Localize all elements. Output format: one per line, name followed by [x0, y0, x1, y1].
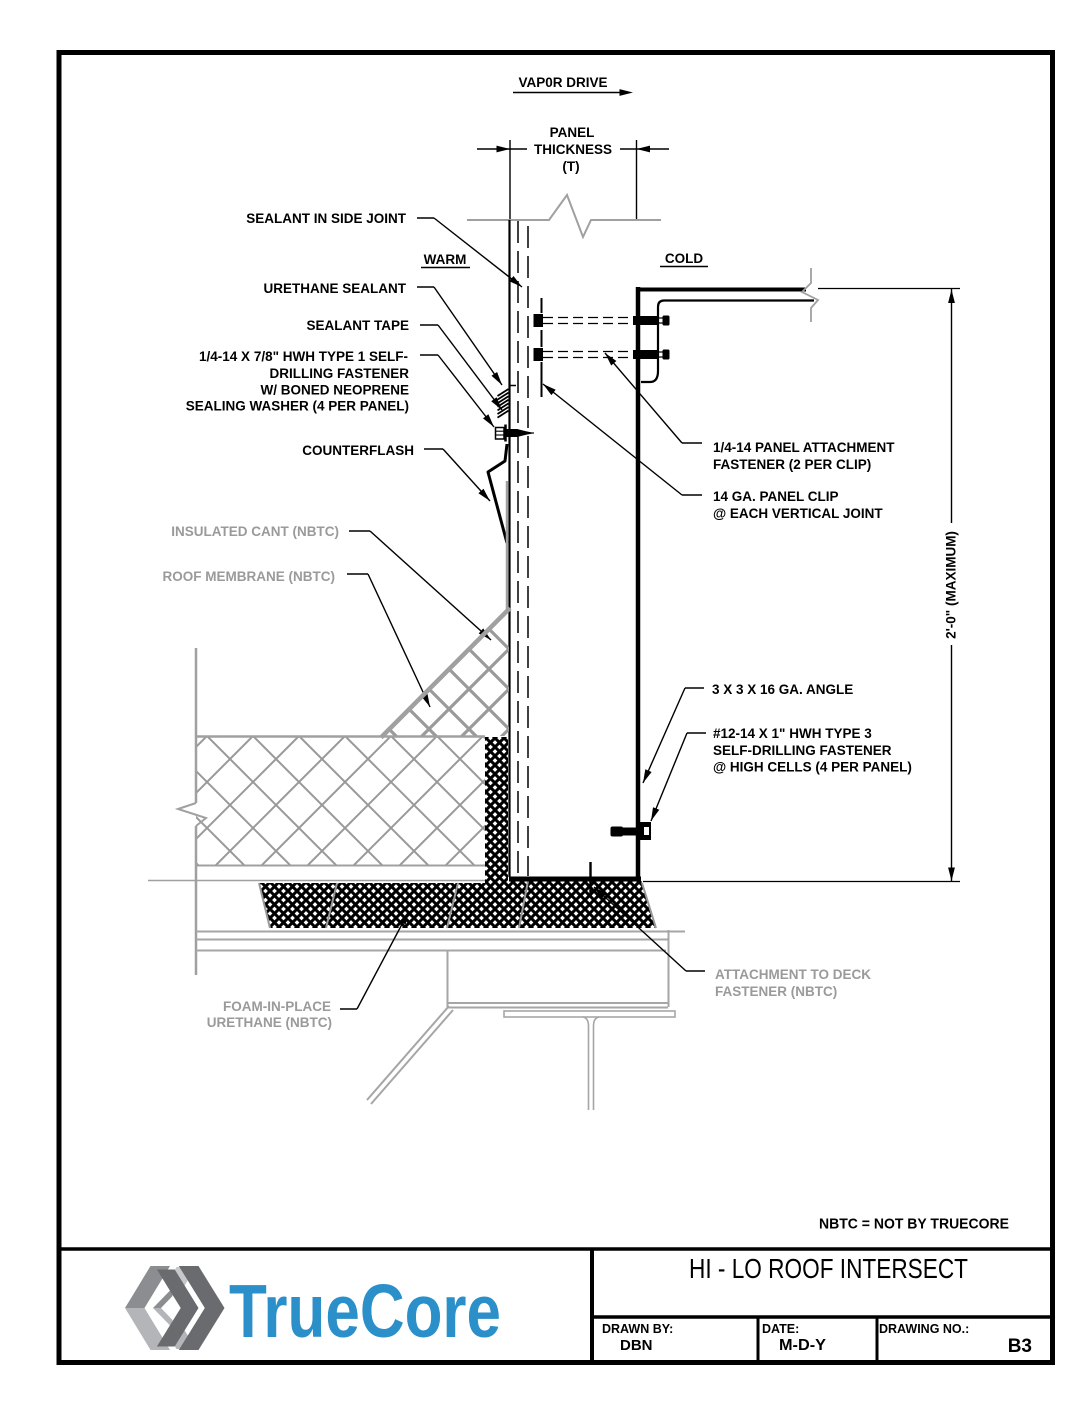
svg-text:DRAWING NO.:: DRAWING NO.:: [879, 1322, 969, 1336]
svg-text:SEALANT TAPE: SEALANT TAPE: [306, 318, 409, 333]
svg-text:1/4-14 X 7/8" HWH TYPE 1 SELF-: 1/4-14 X 7/8" HWH TYPE 1 SELF-: [199, 349, 408, 364]
svg-text:3 X 3 X 16 GA. ANGLE: 3 X 3 X 16 GA. ANGLE: [712, 682, 853, 697]
svg-text:DRILLING FASTENER: DRILLING FASTENER: [269, 366, 409, 381]
svg-text:WARM: WARM: [424, 252, 467, 267]
svg-text:ATTACHMENT TO DECK: ATTACHMENT TO DECK: [715, 967, 871, 982]
svg-text:1/4-14 PANEL ATTACHMENT: 1/4-14 PANEL ATTACHMENT: [713, 440, 895, 455]
svg-text:URETHANE (NBTC): URETHANE (NBTC): [207, 1015, 332, 1030]
svg-text:VAP0R DRIVE: VAP0R DRIVE: [518, 75, 607, 90]
svg-text:DATE:: DATE:: [762, 1322, 799, 1336]
svg-text:ROOF MEMBRANE (NBTC): ROOF MEMBRANE (NBTC): [163, 569, 335, 584]
svg-text:DRAWN BY:: DRAWN BY:: [602, 1322, 673, 1336]
svg-text:DBN: DBN: [620, 1337, 653, 1354]
svg-text:14 GA. PANEL CLIP: 14 GA. PANEL CLIP: [713, 489, 839, 504]
svg-text:SEALING WASHER (4 PER PANEL): SEALING WASHER (4 PER PANEL): [186, 399, 409, 414]
svg-text:FASTENER (2 PER CLIP): FASTENER (2 PER CLIP): [713, 457, 871, 472]
svg-text:B3: B3: [1008, 1336, 1032, 1357]
svg-text:#12-14 X 1" HWH TYPE 3: #12-14 X 1" HWH TYPE 3: [713, 726, 872, 741]
svg-text:(T): (T): [562, 159, 579, 174]
svg-text:@ HIGH CELLS (4 PER PANEL): @ HIGH CELLS (4 PER PANEL): [713, 760, 912, 775]
svg-text:URETHANE SEALANT: URETHANE SEALANT: [263, 281, 406, 296]
svg-text:FOAM-IN-PLACE: FOAM-IN-PLACE: [223, 999, 331, 1014]
svg-text:COLD: COLD: [665, 251, 703, 266]
svg-text:W/ BONED NEOPRENE: W/ BONED NEOPRENE: [260, 383, 409, 398]
svg-text:HI - LO ROOF INTERSECT: HI - LO ROOF INTERSECT: [689, 1253, 968, 1284]
svg-text:SELF-DRILLING FASTENER: SELF-DRILLING FASTENER: [713, 743, 892, 758]
svg-text:TrueCore: TrueCore: [229, 1269, 501, 1353]
svg-text:SEALANT IN SIDE JOINT: SEALANT IN SIDE JOINT: [246, 211, 407, 226]
svg-text:FASTENER (NBTC): FASTENER (NBTC): [715, 984, 837, 999]
svg-text:NBTC = NOT BY TRUECORE: NBTC = NOT BY TRUECORE: [819, 1216, 1009, 1233]
svg-text:M-D-Y: M-D-Y: [779, 1337, 827, 1354]
svg-text:2'-0" (MAXIMUM): 2'-0" (MAXIMUM): [944, 531, 959, 639]
svg-text:PANEL: PANEL: [550, 125, 595, 140]
svg-text:COUNTERFLASH: COUNTERFLASH: [302, 443, 414, 458]
svg-text:@ EACH VERTICAL JOINT: @ EACH VERTICAL JOINT: [713, 506, 883, 521]
svg-text:THICKNESS: THICKNESS: [534, 142, 612, 157]
svg-text:INSULATED CANT (NBTC): INSULATED CANT (NBTC): [171, 524, 339, 539]
